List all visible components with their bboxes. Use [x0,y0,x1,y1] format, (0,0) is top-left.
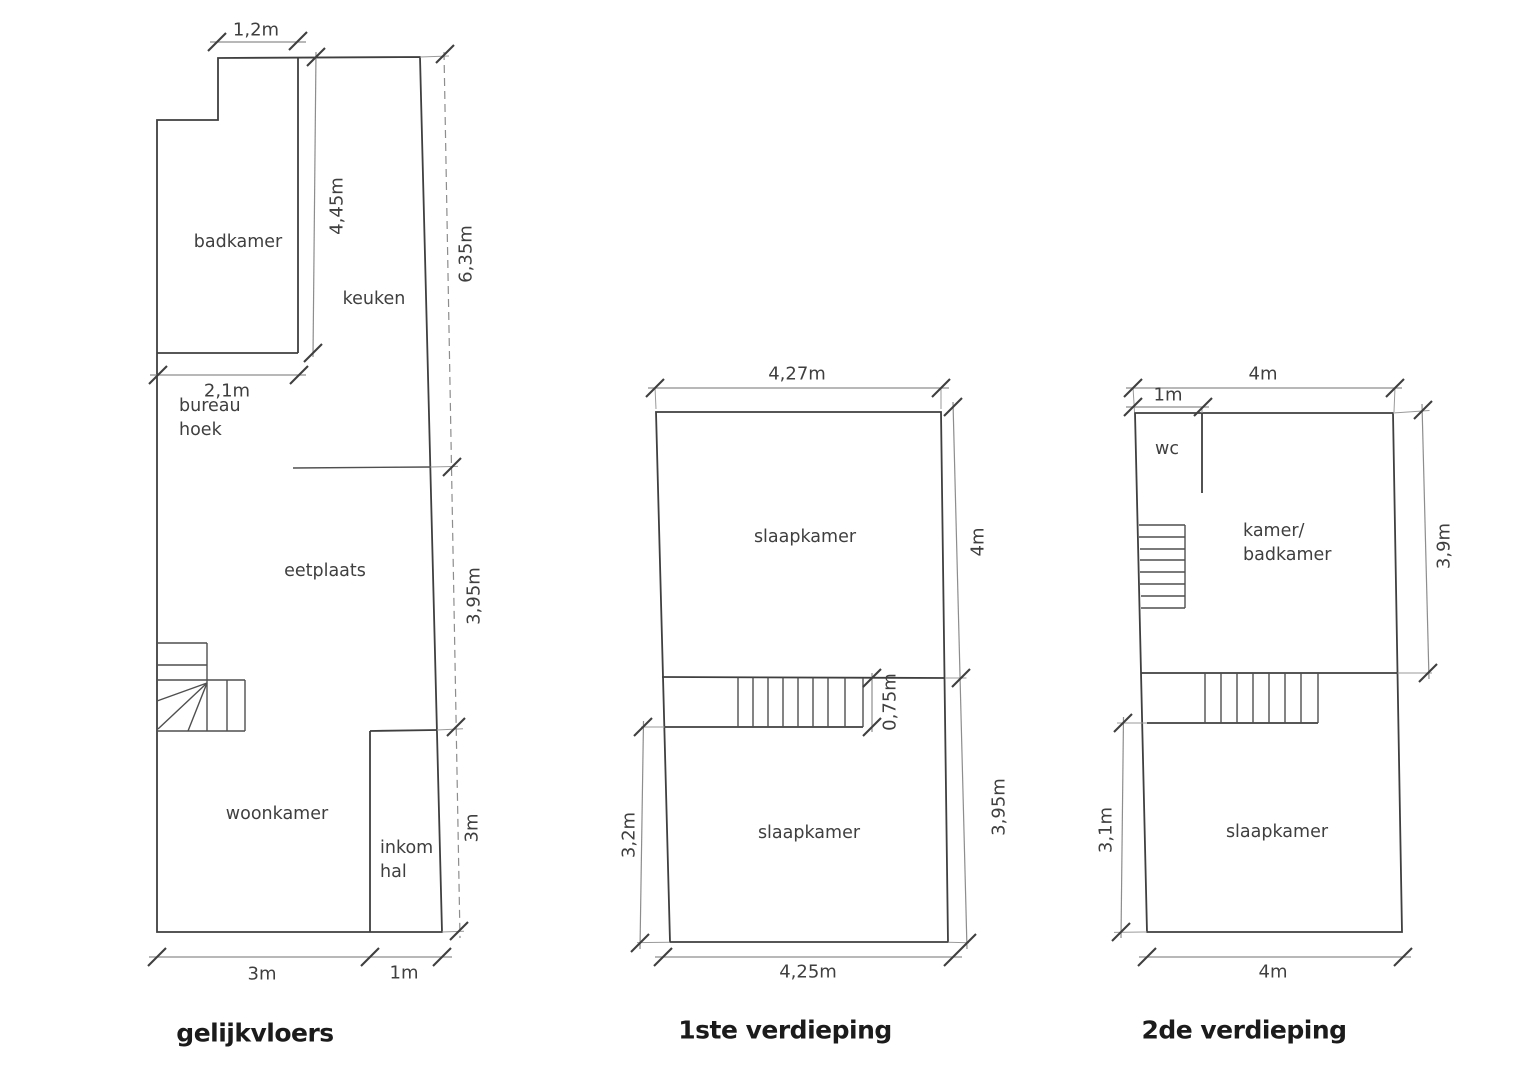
room-label-second-bedroom: slaapkamer [1226,822,1329,842]
dim-label-right-middle: 3,95m [464,567,485,625]
dim-label-second-left: 3,1m [1096,807,1117,853]
room-label-eetplaats: eetplaats [284,561,366,581]
first-dimension-lines [631,379,976,966]
room-label-wc: wc [1155,439,1179,459]
first-stair-top-wall [662,677,945,678]
dim-label-second-top: 4m [1249,364,1278,385]
room-label-bureau-line1: bureau [179,396,241,416]
floor-title-ground: gelijkvloers [176,1019,333,1048]
inkomhal-top-wall [370,730,437,731]
floor-title-second: 2de verdieping [1141,1016,1346,1045]
room-label-inkom-line1: inkom [380,838,433,858]
dim-label-notch-width: 1,2m [233,20,279,41]
room-label-kamer-line2: badkamer [1243,545,1332,565]
second-left-stairs [1139,525,1185,608]
floor-title-first: 1ste verdieping [678,1016,892,1045]
dim-label-first-bottom: 4,25m [779,962,837,983]
floorplan-canvas: 1,2m 4,45m 6,35m 2,1m 3,95m 3m 3m 1m bad… [0,0,1531,1080]
dim-label-second-bottom: 4m [1259,962,1288,983]
dim-label-bottom-main: 3m [248,964,277,985]
room-label-bedroom-upper: slaapkamer [754,527,857,547]
dim-label-right-lower: 3m [462,814,483,843]
ground-stairs [157,643,245,731]
dim-label-second-wc-width: 1m [1154,385,1183,406]
room-label-bedroom-lower: slaapkamer [758,823,861,843]
dim-label-first-stair-depth: 0,75m [880,673,901,731]
second-stairs [1205,673,1318,723]
room-label-woonkamer: woonkamer [226,804,329,824]
room-label-badkamer: badkamer [194,232,283,252]
dim-label-first-right-upper: 4m [968,528,989,557]
ground-dimension-lines [148,32,468,966]
dim-label-kitchen-height: 4,45m [327,177,348,235]
first-extension-lines [637,387,969,943]
keuken-bottom-line [293,467,431,468]
first-stairs [738,678,863,728]
dim-label-second-right: 3,9m [1434,523,1455,569]
room-label-inkom-line2: hal [380,862,407,882]
second-extension-lines [1114,387,1432,932]
dim-label-bottom-hall: 1m [390,963,419,984]
dim-label-first-top: 4,27m [768,364,826,385]
dim-label-first-left: 3,2m [619,812,640,858]
plan-second-floor: 4m 1m 3,9m 3,1m 4m wc kamer/ badkamer sl… [1096,364,1455,1045]
ground-outer-wall [157,57,442,932]
room-label-kamer-line1: kamer/ [1243,521,1305,541]
room-label-keuken: keuken [343,289,406,309]
plan-first-floor: 4,27m 4m 0,75m 3,2m 3,95m 4,25m slaapkam… [619,364,1010,1045]
dim-label-first-right-lower: 3,95m [989,778,1010,836]
plan-ground-floor: 1,2m 4,45m 6,35m 2,1m 3,95m 3m 3m 1m bad… [148,20,485,1048]
floorplan-page: 1,2m 4,45m 6,35m 2,1m 3,95m 3m 3m 1m bad… [0,0,1531,1080]
dim-label-right-upper: 6,35m [456,225,477,283]
room-label-bureau-line2: hoek [179,420,223,440]
